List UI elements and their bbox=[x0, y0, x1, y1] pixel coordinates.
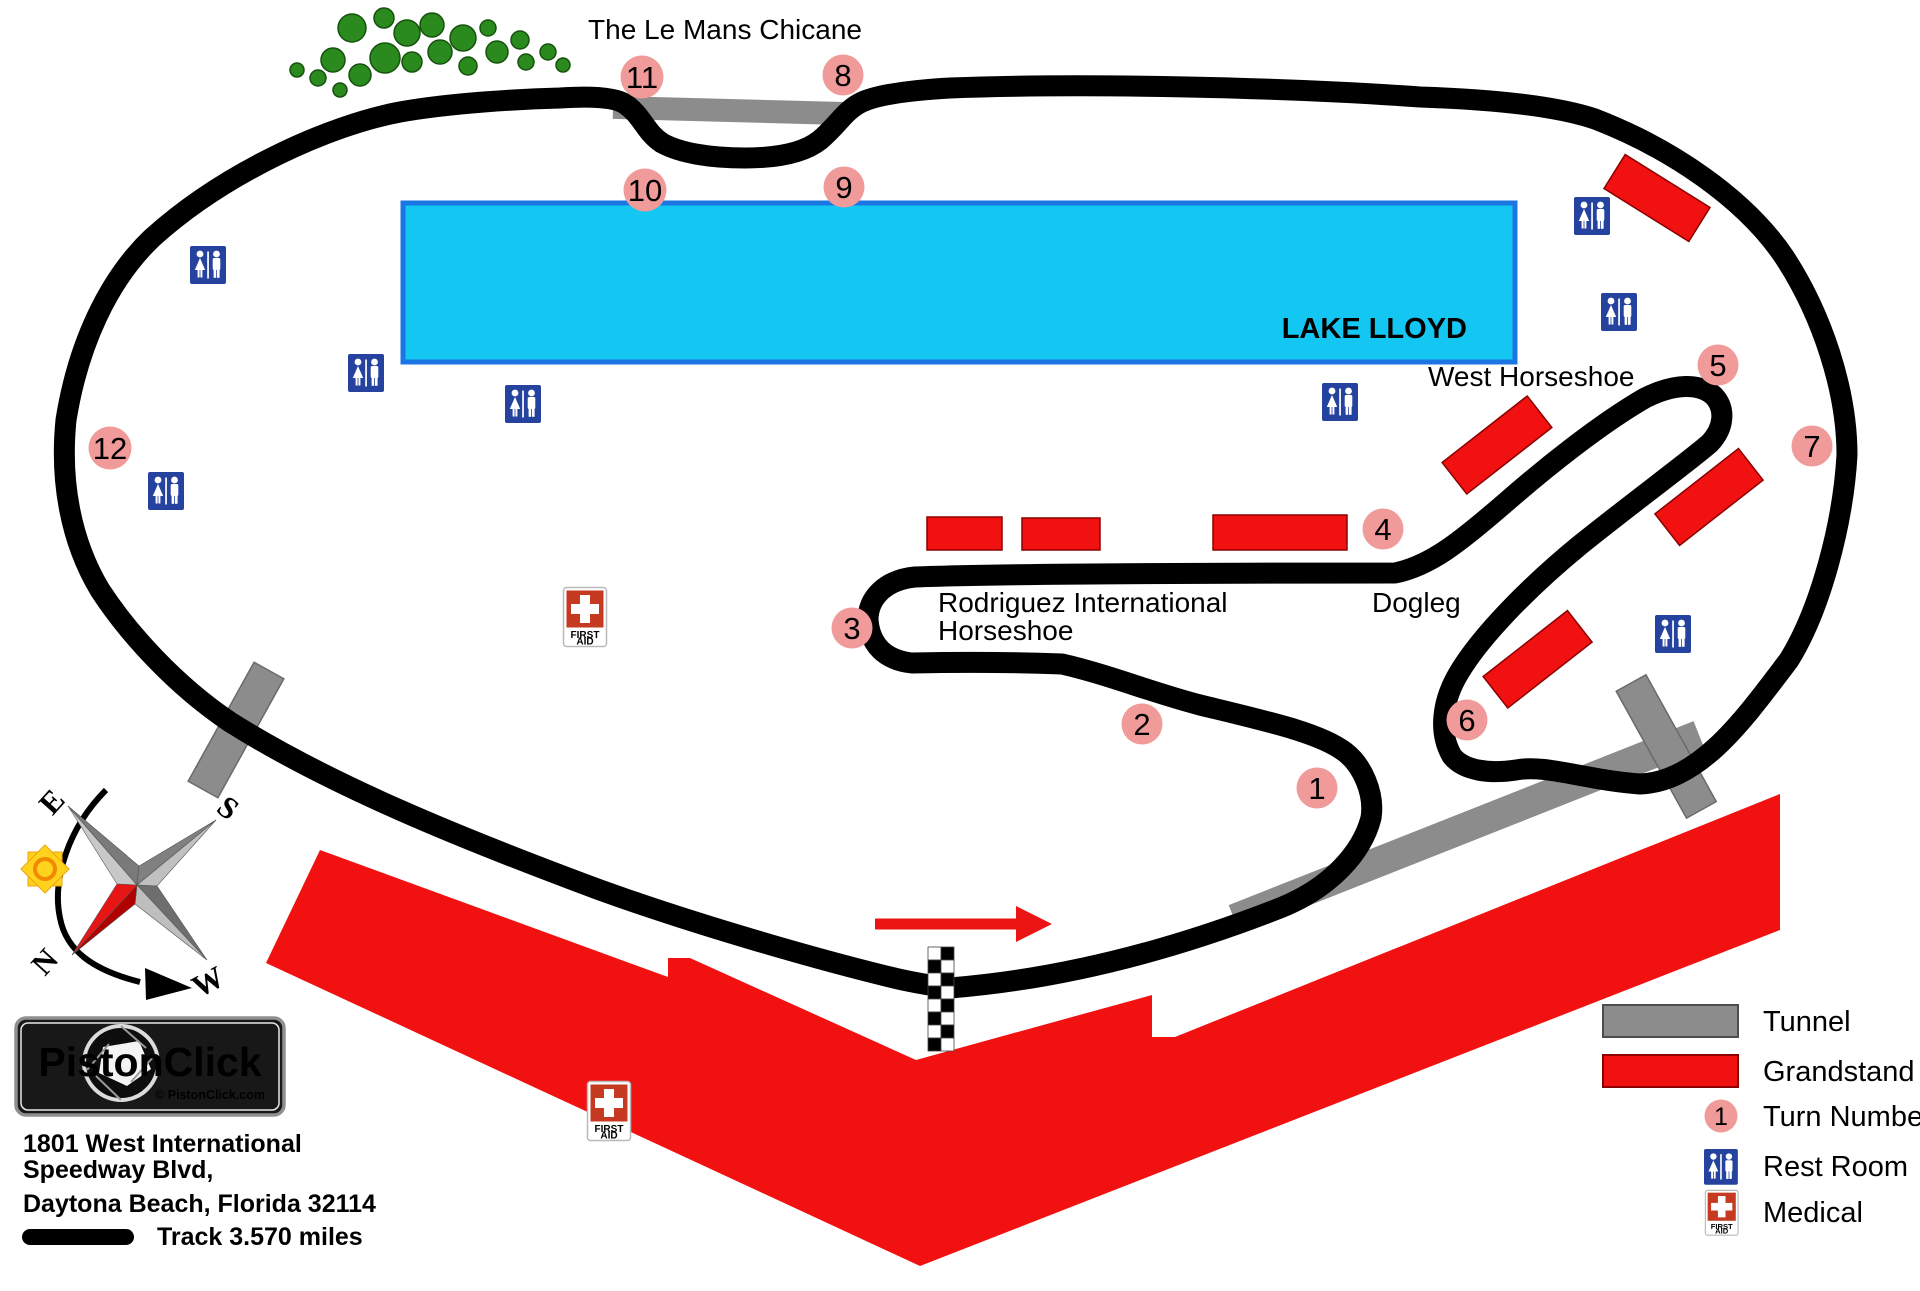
svg-text:3: 3 bbox=[843, 611, 860, 646]
first-aid-icon bbox=[588, 1082, 631, 1142]
legend-item-rest-room: Rest Room bbox=[1704, 1149, 1908, 1185]
legend-item-tunnel: Tunnel bbox=[1603, 1005, 1851, 1038]
compass-e: E bbox=[32, 782, 72, 821]
legend-turn-label: Turn Number bbox=[1763, 1101, 1920, 1133]
turn-marker-6: 6 bbox=[1447, 700, 1488, 741]
restroom-icon bbox=[505, 385, 541, 423]
label-west-horseshoe: West Horseshoe bbox=[1428, 361, 1634, 392]
svg-text:1: 1 bbox=[1308, 771, 1325, 806]
restroom-icon bbox=[148, 472, 184, 510]
svg-text:7: 7 bbox=[1803, 429, 1820, 464]
logo-name: PistonClick bbox=[38, 1039, 261, 1085]
label-rodriguez-2: Horseshoe bbox=[938, 615, 1073, 646]
legend-tunnel-swatch bbox=[1603, 1005, 1738, 1037]
turn-marker-5: 5 bbox=[1698, 345, 1739, 386]
turn-marker-1: 1 bbox=[1297, 768, 1338, 809]
legend-grandstand-swatch bbox=[1603, 1055, 1738, 1087]
label-rodriguez-1: Rodriguez International bbox=[938, 587, 1228, 618]
direction-arrow bbox=[875, 906, 1052, 942]
turn-marker-2: 2 bbox=[1122, 704, 1163, 745]
restroom-icon bbox=[348, 354, 384, 392]
restroom-icon bbox=[1574, 197, 1610, 235]
address-line2: Speedway Blvd, bbox=[23, 1156, 213, 1184]
turn-marker-9: 9 bbox=[824, 167, 865, 208]
legend-item-turn-number: 1 Turn Number bbox=[1705, 1100, 1920, 1134]
label-le-mans-chicane: The Le Mans Chicane bbox=[588, 14, 862, 45]
restroom-icon bbox=[1322, 383, 1358, 421]
legend-item-grandstand: Grandstand bbox=[1603, 1055, 1915, 1088]
svg-text:9: 9 bbox=[835, 170, 852, 205]
address-line1: 1801 West International bbox=[23, 1130, 302, 1158]
turn-markers: 1 2 3 4 5 6 7 8 9 10 11 12 bbox=[89, 55, 1833, 809]
legend-grandstand-label: Grandstand bbox=[1763, 1056, 1915, 1088]
restroom-icon bbox=[1655, 615, 1691, 653]
restroom-icon bbox=[1704, 1149, 1738, 1185]
turn-marker-7: 7 bbox=[1792, 426, 1833, 467]
svg-text:6: 6 bbox=[1458, 703, 1475, 738]
turn-marker-4: 4 bbox=[1363, 509, 1404, 550]
main-grandstand-v bbox=[266, 794, 1780, 1266]
restroom-icon bbox=[190, 246, 226, 284]
svg-text:5: 5 bbox=[1709, 348, 1726, 383]
svg-text:2: 2 bbox=[1133, 707, 1150, 742]
svg-text:4: 4 bbox=[1374, 512, 1391, 547]
address-line3: Daytona Beach, Florida 32114 bbox=[23, 1190, 376, 1218]
first-aid-icon bbox=[564, 588, 607, 648]
compass-n: N bbox=[24, 942, 65, 982]
compass-w: W bbox=[186, 959, 230, 1004]
legend-tunnel-label: Tunnel bbox=[1763, 1006, 1851, 1038]
svg-text:8: 8 bbox=[834, 58, 851, 93]
compass-star bbox=[68, 806, 216, 960]
legend: Tunnel Grandstand 1 Turn Number Rest Roo… bbox=[1603, 1005, 1920, 1236]
track-length-label: Track 3.570 miles bbox=[157, 1223, 363, 1251]
lake-lloyd-label: LAKE LLOYD bbox=[1282, 313, 1467, 345]
legend-item-medical: Medical bbox=[1705, 1190, 1863, 1235]
sun-icon bbox=[21, 845, 69, 893]
turn-marker-10: 10 bbox=[624, 169, 667, 212]
svg-text:10: 10 bbox=[628, 173, 662, 208]
turn-marker-8: 8 bbox=[823, 55, 864, 96]
turn-marker-11: 11 bbox=[621, 56, 664, 99]
turn-marker-3: 3 bbox=[832, 608, 873, 649]
legend-turn-sample: 1 bbox=[1714, 1103, 1728, 1131]
logo-credit: © PistonClick.com bbox=[155, 1088, 265, 1102]
track-map: FIRST AID LAKE LLOYD bbox=[0, 0, 1920, 1291]
turn-marker-12: 12 bbox=[89, 427, 132, 470]
trees bbox=[290, 8, 570, 97]
legend-medical-label: Medical bbox=[1763, 1197, 1863, 1229]
address-block: 1801 West International Speedway Blvd, D… bbox=[22, 1130, 376, 1251]
start-finish-line bbox=[928, 947, 954, 1051]
svg-text:12: 12 bbox=[93, 431, 127, 466]
first-aid-icon bbox=[1705, 1190, 1738, 1235]
legend-rest-room-label: Rest Room bbox=[1763, 1151, 1908, 1183]
pistonclick-logo: PistonClick © PistonClick.com bbox=[16, 1018, 284, 1115]
svg-text:11: 11 bbox=[626, 60, 658, 95]
restroom-icon bbox=[1601, 293, 1637, 331]
track-length-swatch bbox=[22, 1229, 134, 1245]
label-dogleg: Dogleg bbox=[1372, 587, 1461, 618]
compass-rose: E S N W bbox=[21, 782, 246, 1004]
